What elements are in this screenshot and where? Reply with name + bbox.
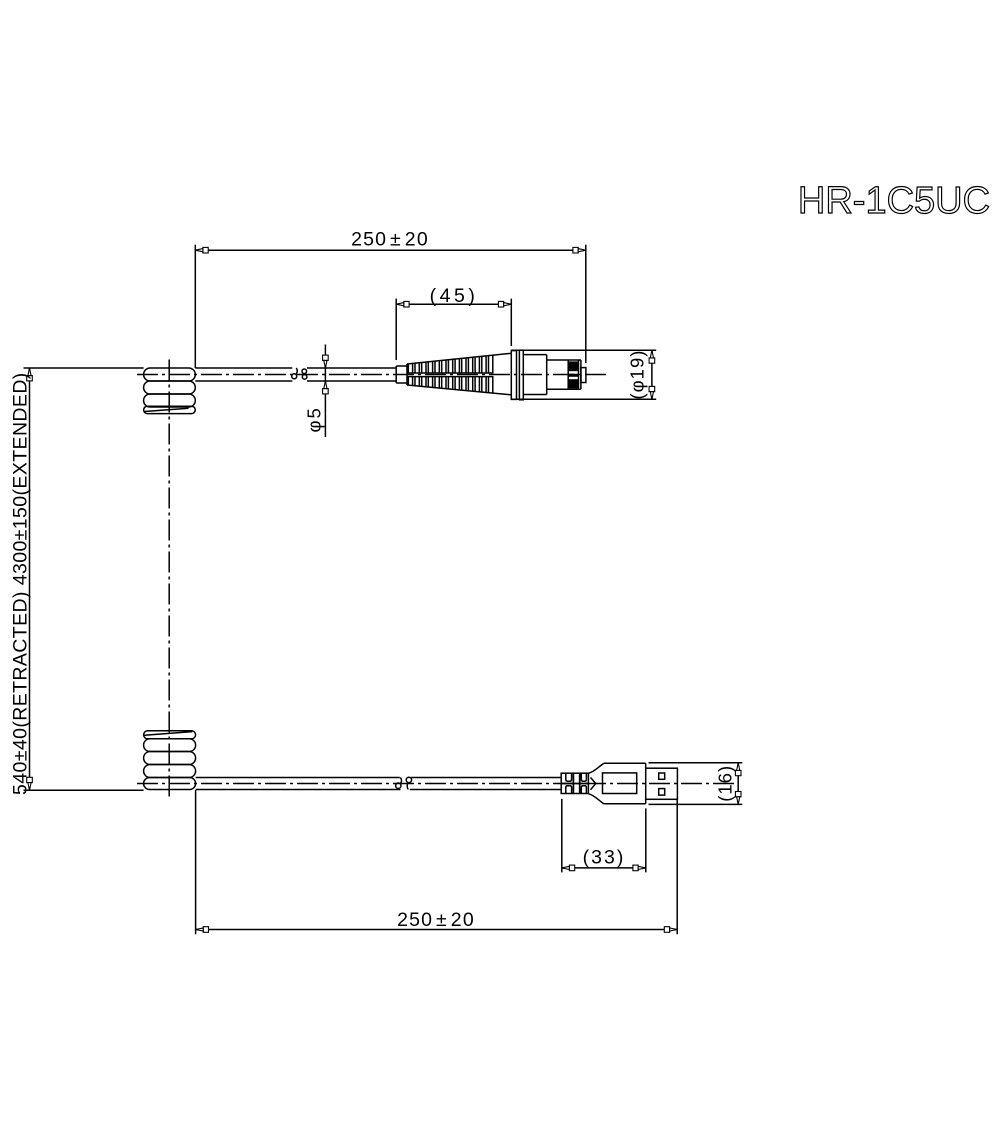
svg-text:(φ19): (φ19) — [627, 350, 648, 400]
svg-text:HR-1C5UC: HR-1C5UC — [798, 180, 990, 222]
svg-text:(45): (45) — [430, 285, 479, 307]
svg-text:540±40(RETRACTED) 4300±150(EXT: 540±40(RETRACTED) 4300±150(EXTENDED) — [10, 372, 32, 795]
svg-text:φ5: φ5 — [304, 406, 325, 432]
svg-text:(33): (33) — [583, 846, 626, 868]
svg-text:(16): (16) — [715, 765, 736, 802]
svg-text:250 ± 20: 250 ± 20 — [397, 909, 475, 931]
svg-text:250 ± 20: 250 ± 20 — [351, 229, 429, 251]
